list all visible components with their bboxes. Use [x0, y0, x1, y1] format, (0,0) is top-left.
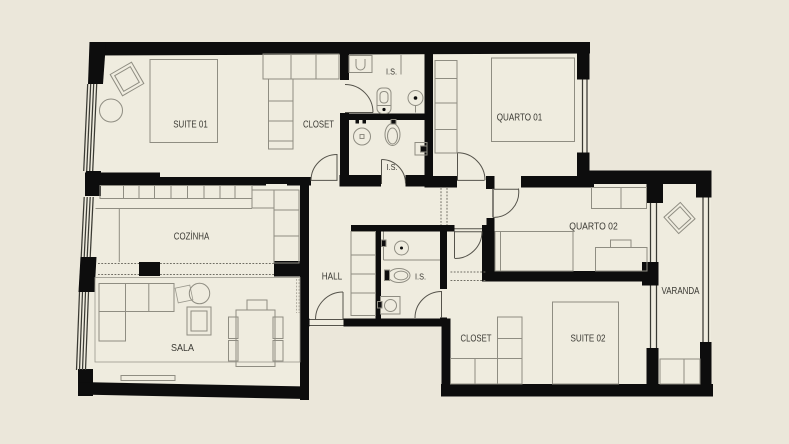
svg-text:I.S.: I.S.: [386, 68, 397, 77]
svg-text:SUITE 01: SUITE 01: [173, 120, 208, 131]
svg-text:QUARTO 02: QUARTO 02: [569, 222, 618, 233]
svg-text:SALA: SALA: [171, 343, 194, 354]
svg-text:VARANDA: VARANDA: [662, 286, 700, 297]
svg-text:COZİNHA: COZİNHA: [174, 232, 210, 243]
svg-text:I.S.: I.S.: [387, 163, 398, 172]
svg-text:CLOSET: CLOSET: [303, 120, 334, 131]
svg-text:I.S.: I.S.: [415, 273, 426, 282]
svg-text:HALL: HALL: [322, 272, 343, 283]
svg-text:CLOSET: CLOSET: [461, 334, 492, 345]
svg-text:SUITE 02: SUITE 02: [571, 334, 606, 345]
svg-text:QUARTO 01: QUARTO 01: [497, 113, 543, 124]
